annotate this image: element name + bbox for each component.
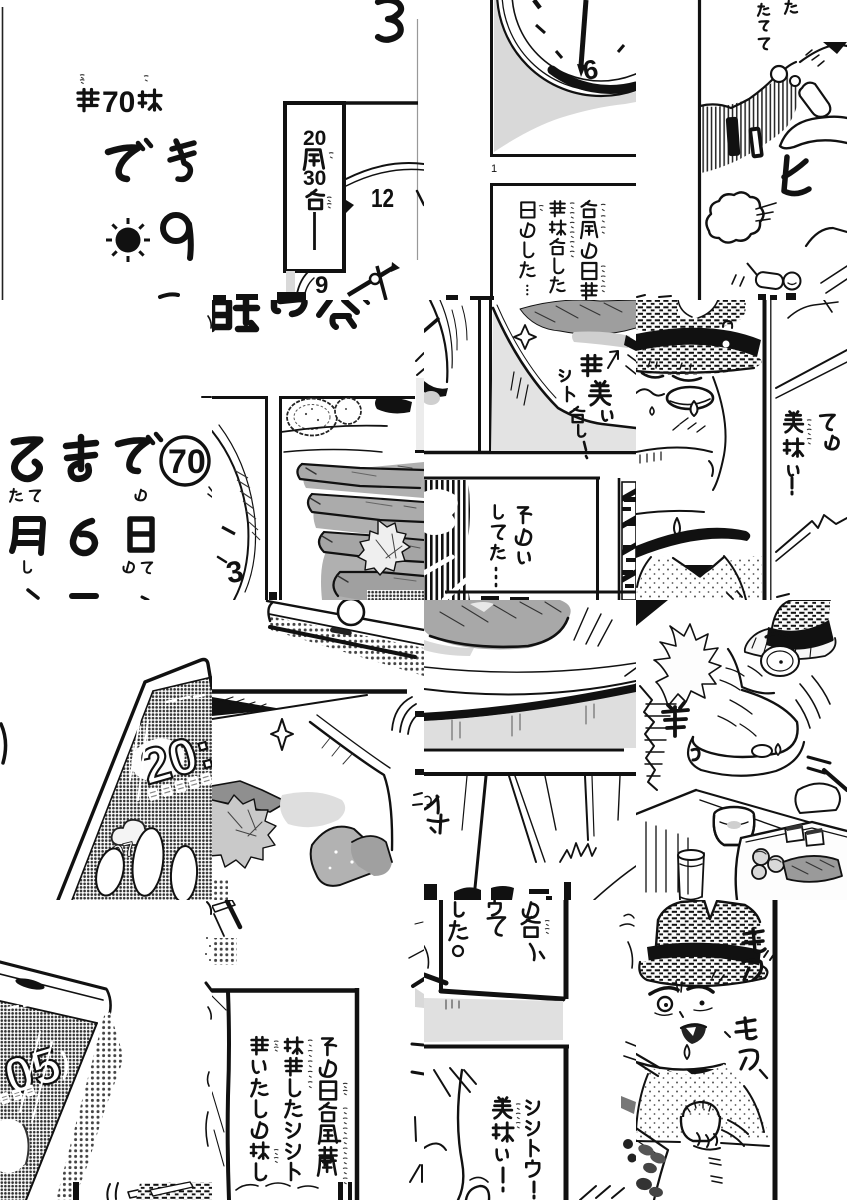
svg-text:12: 12 <box>371 184 394 213</box>
svg-text:1: 1 <box>491 163 497 175</box>
svg-text:70: 70 <box>102 86 135 119</box>
svg-text:70: 70 <box>168 443 206 481</box>
svg-text:20: 20 <box>303 127 326 150</box>
svg-text:9: 9 <box>315 272 328 299</box>
svg-text:30: 30 <box>303 167 326 190</box>
